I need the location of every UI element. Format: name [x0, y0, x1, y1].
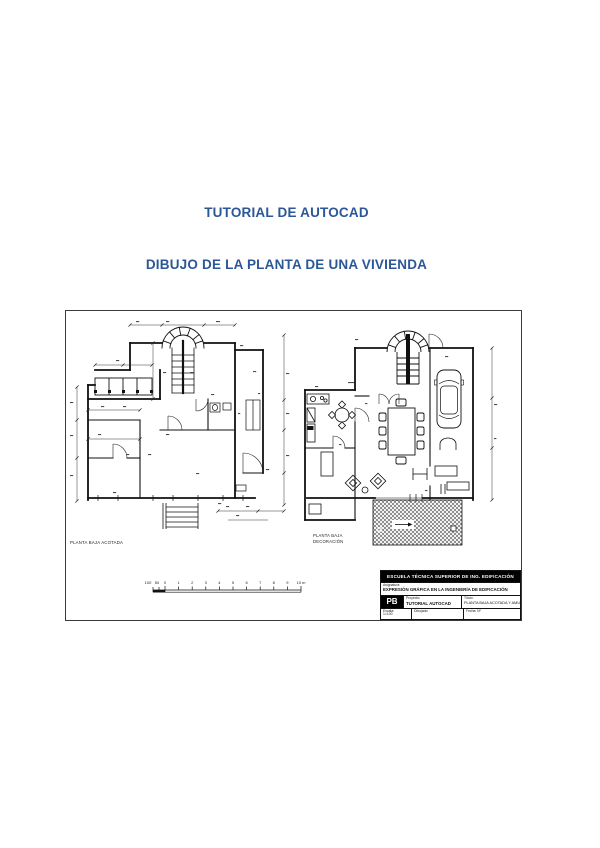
svg-text:6: 6	[245, 580, 248, 585]
sheet-code: PB	[381, 596, 403, 607]
svg-text:5: 5	[232, 580, 235, 585]
title-block: ESCUELA TÉCNICA SUPERIOR DE ING. EDIFICA…	[380, 570, 521, 620]
left-plan-label: PLANTA BAJA ACOTADA	[70, 540, 123, 545]
drawn-by-cell: Dibujado:	[411, 609, 463, 620]
floor-plan-furnished: PLANTA BAJA DECORACIÓN	[295, 318, 521, 558]
svg-text:9: 9	[286, 580, 289, 585]
doc-title: TUTORIAL DE AUTOCAD	[0, 205, 573, 220]
svg-text:10 m: 10 m	[297, 580, 307, 585]
scale-cell: Escala: 1=100	[381, 609, 411, 620]
scale-bar: 100 50 0 1 2 3 4 5 6 7 8 9 10 m	[143, 577, 308, 597]
project-value: TUTORIAL AUTOCAD	[406, 601, 459, 606]
dining-set	[379, 399, 424, 464]
drawn-by-label: Dibujado:	[414, 610, 461, 614]
project-cell: Proyecto: TUTORIAL AUTOCAD	[403, 596, 461, 607]
car-drawing	[435, 370, 464, 428]
svg-text:3: 3	[205, 580, 208, 585]
date-number-cell: Fecha: Nº	[463, 609, 520, 620]
svg-text:100: 100	[145, 580, 152, 585]
scale-value: 1=100	[383, 613, 409, 617]
svg-text:7: 7	[259, 580, 262, 585]
right-plan-label-line1: PLANTA BAJA	[313, 533, 343, 538]
terrace-hatched	[373, 500, 462, 545]
title-block-subject-cell: Asignatura: EXPRESIÓN GRÁFICA EN LA INGE…	[381, 582, 520, 596]
svg-text:50: 50	[155, 580, 160, 585]
scale-bar-labels: 100 50 0 1 2 3 4 5 6 7 8 9 10 m	[145, 580, 306, 585]
document-page: TUTORIAL DE AUTOCAD DIBUJO DE LA PLANTA …	[0, 0, 600, 848]
kitchen-furniture	[307, 394, 356, 442]
title-block-school: ESCUELA TÉCNICA SUPERIOR DE ING. EDIFICA…	[381, 571, 520, 582]
right-plan-label-line2: DECORACIÓN	[313, 539, 343, 544]
sheet-title-value: PLANTA BAJA ACOTADA Y AMUEBLADA	[464, 601, 518, 606]
doc-subtitle: DIBUJO DE LA PLANTA DE UNA VIVIENDA	[0, 257, 573, 272]
date-number-label: Fecha: Nº	[466, 610, 518, 614]
svg-text:2: 2	[191, 580, 194, 585]
dimension-ticks	[75, 323, 285, 512]
svg-text:8: 8	[273, 580, 276, 585]
sheet-title-cell: Título: PLANTA BAJA ACOTADA Y AMUEBLADA	[461, 596, 520, 607]
svg-text:0: 0	[164, 580, 167, 585]
svg-text:1: 1	[177, 580, 180, 585]
floor-plan-dimensioned: PLANTA BAJA ACOTADA	[68, 315, 300, 567]
subject-value: EXPRESIÓN GRÁFICA EN LA INGENIERÍA DE ED…	[383, 587, 518, 592]
svg-text:4: 4	[218, 580, 221, 585]
